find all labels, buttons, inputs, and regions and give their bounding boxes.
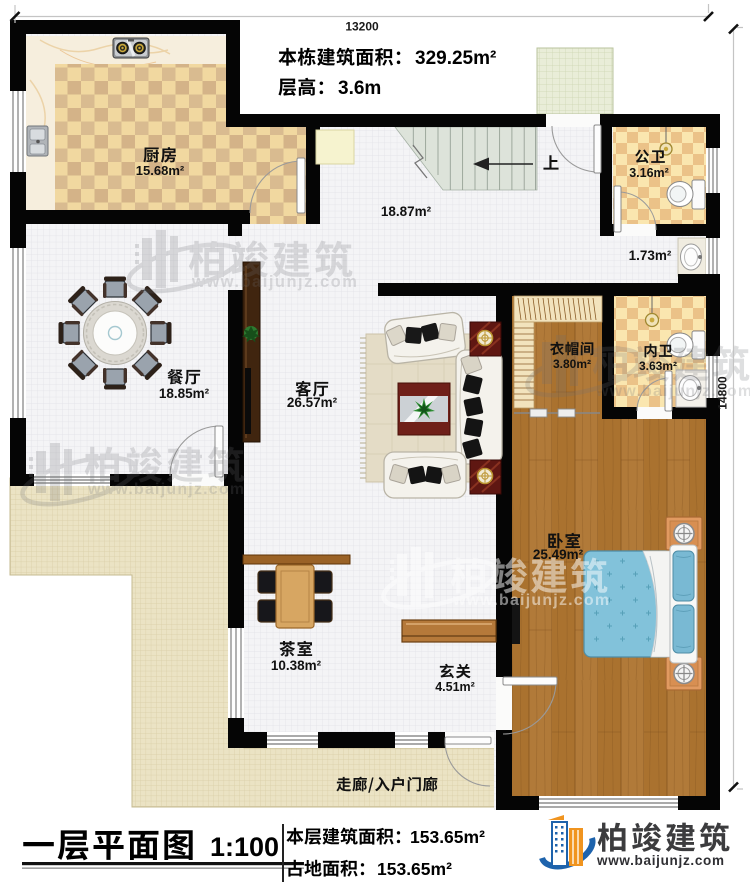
svg-text:26.57m²: 26.57m² (287, 395, 338, 410)
svg-text:3.80m²: 3.80m² (553, 357, 591, 371)
svg-text:14800: 14800 (716, 376, 730, 410)
svg-text:www.baijunjz.com: www.baijunjz.com (191, 273, 358, 291)
svg-text:3.63m²: 3.63m² (639, 359, 677, 373)
svg-text:18.85m²: 18.85m² (159, 386, 210, 401)
svg-text:www.baijunjz.com: www.baijunjz.com (452, 592, 610, 609)
svg-text:15.68m²: 15.68m² (136, 163, 185, 178)
svg-text:3.16m²: 3.16m² (629, 166, 669, 180)
svg-text:153.65m²: 153.65m² (377, 859, 452, 879)
svg-text:10.38m²: 10.38m² (271, 658, 322, 673)
svg-text:4.51m²: 4.51m² (435, 680, 475, 694)
svg-text:13200: 13200 (345, 20, 379, 34)
svg-text:1.73m²: 1.73m² (629, 248, 672, 263)
svg-text:329.25m²: 329.25m² (415, 48, 496, 69)
svg-text:3.6m: 3.6m (338, 78, 381, 99)
svg-text:www.baijunjz.com: www.baijunjz.com (596, 853, 725, 868)
svg-text:18.87m²: 18.87m² (381, 204, 432, 219)
svg-text:153.65m²: 153.65m² (410, 827, 485, 847)
svg-text:1:100: 1:100 (210, 832, 279, 862)
svg-text:www.baijunjz.com: www.baijunjz.com (87, 481, 245, 498)
svg-text:25.49m²: 25.49m² (533, 547, 584, 562)
